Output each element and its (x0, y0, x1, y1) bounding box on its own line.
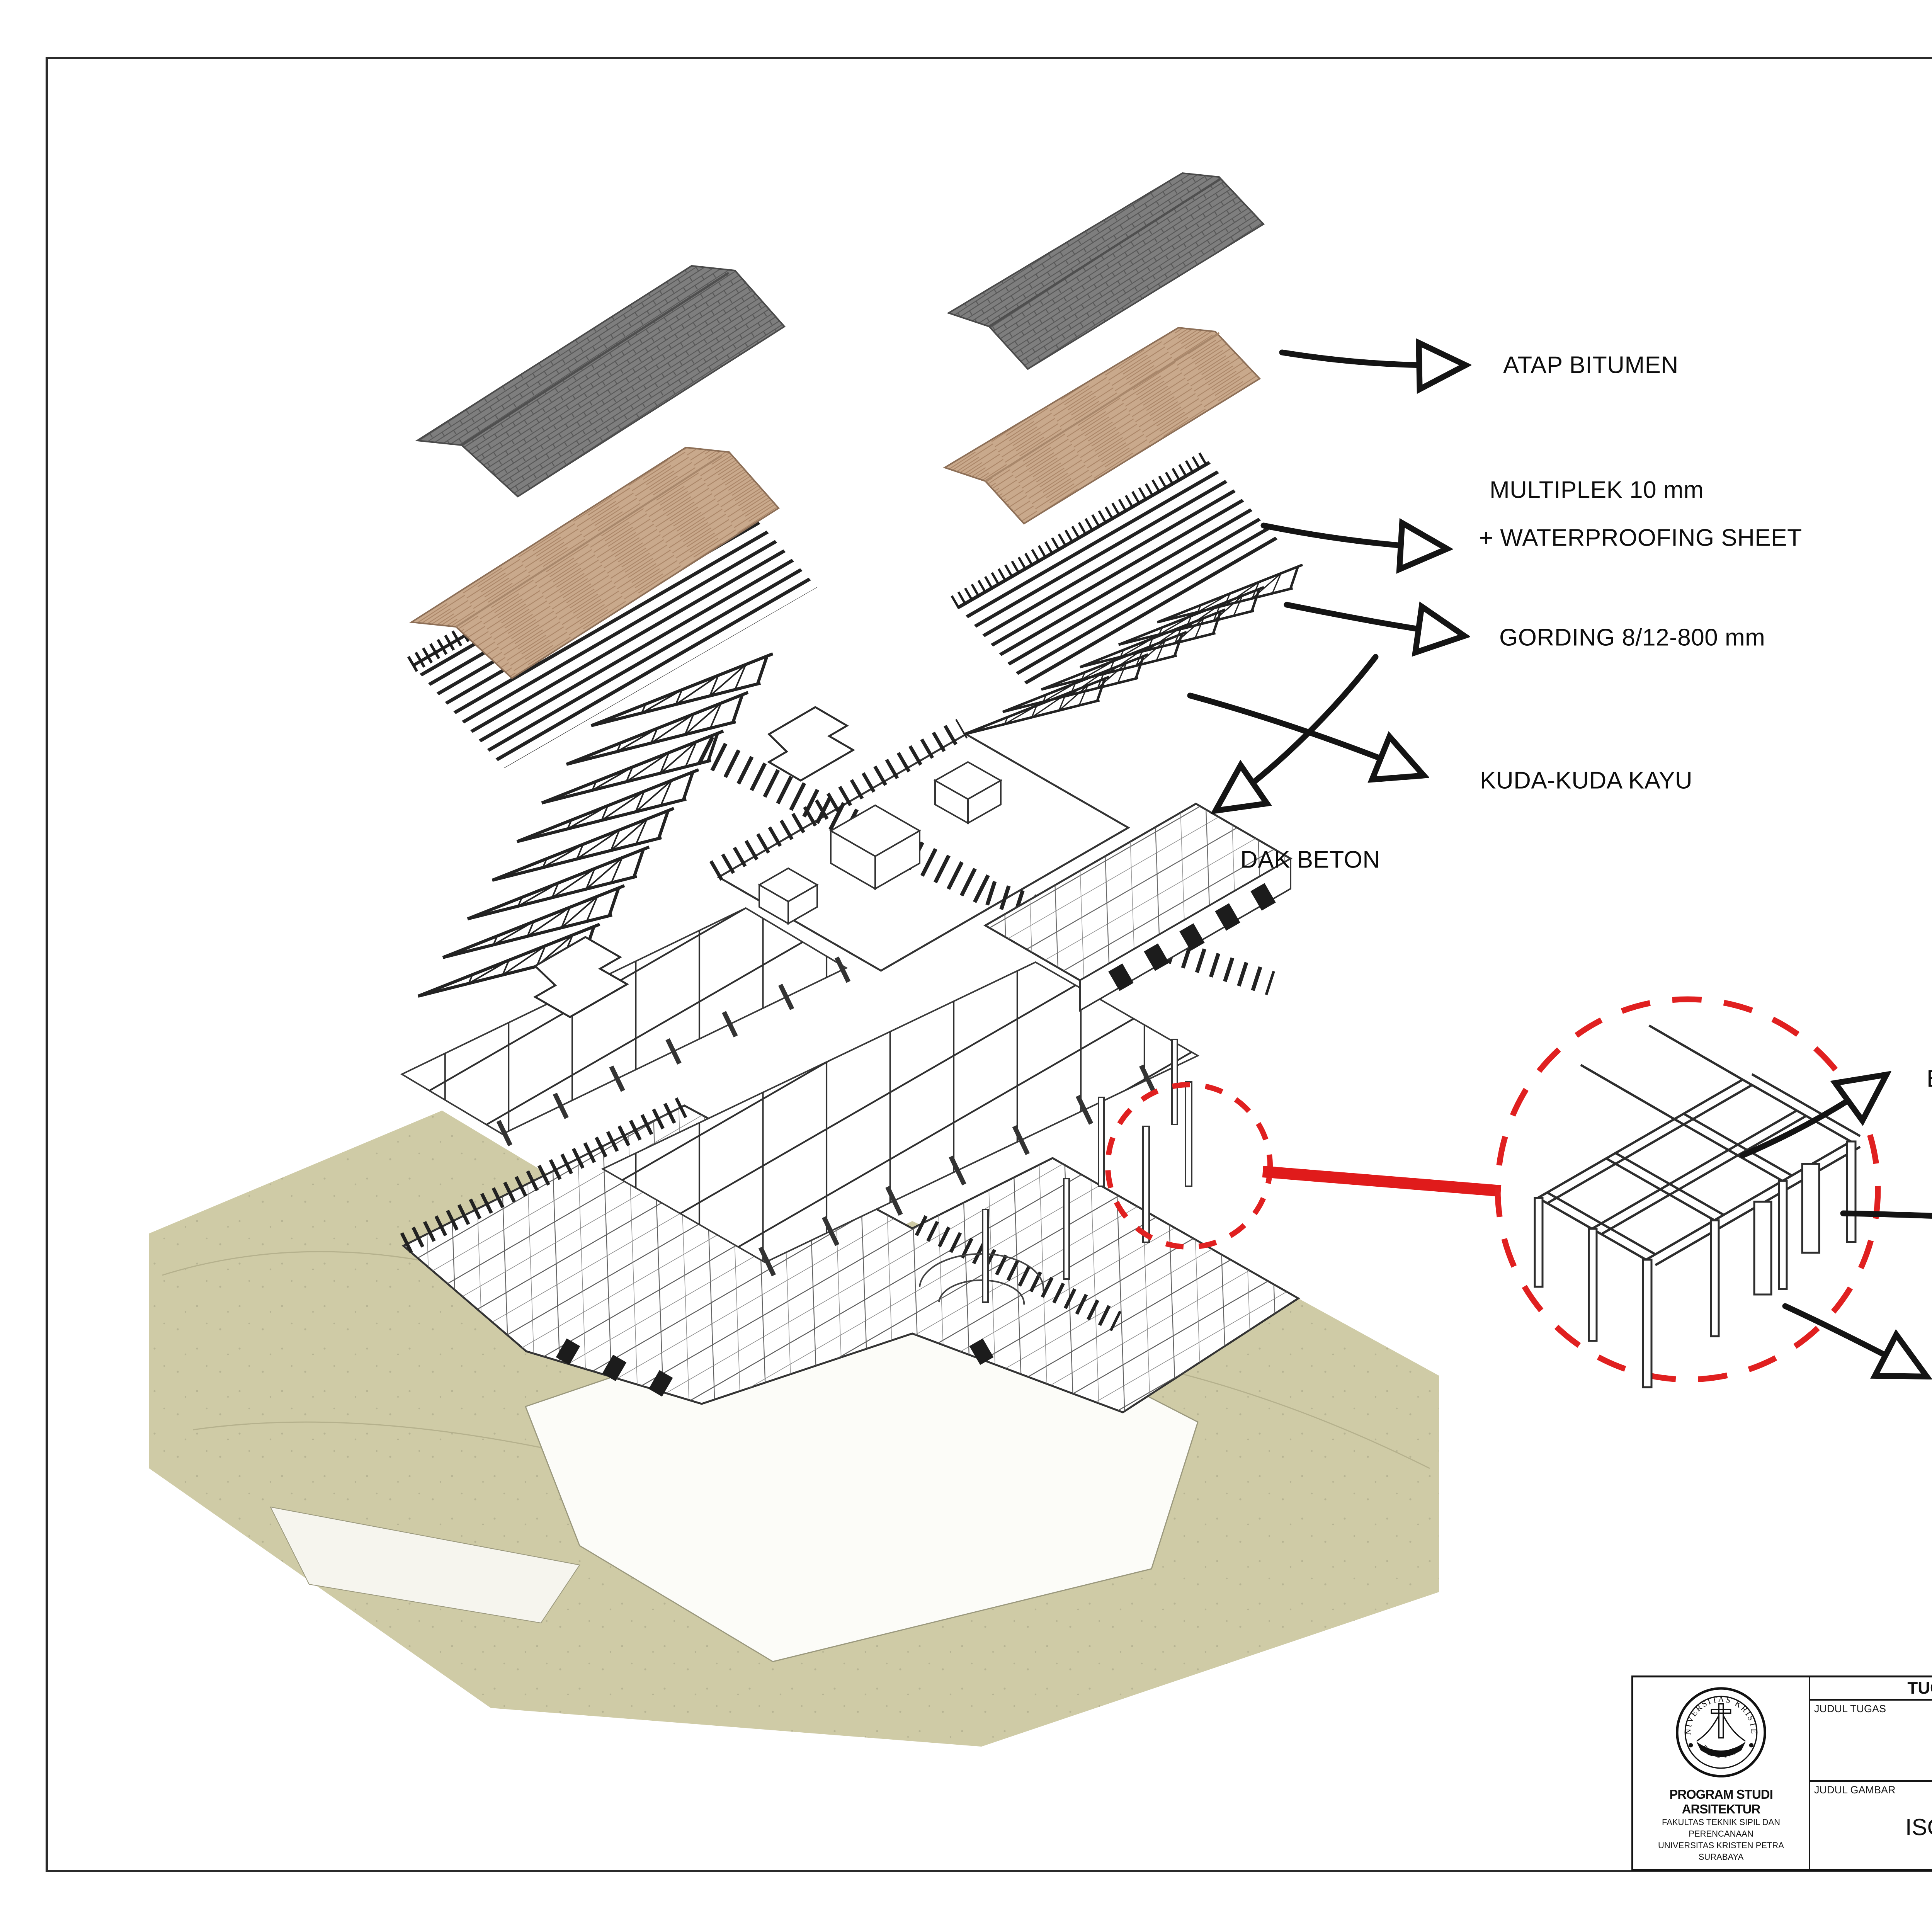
arrow-dak-beton (1217, 657, 1376, 810)
judul-gambar-label: JUDUL GAMBAR (1810, 1782, 1932, 1798)
detail-leader-line (1263, 1172, 1501, 1191)
logo-top-text: UNIVERSITAS KRISTEN (1675, 1686, 1759, 1735)
judul-tugas-line1: FASILITAS TERAPI PENDERITA (1810, 1717, 1932, 1743)
judul-tugas-line2: DEMENSIA DI BATU (1810, 1743, 1932, 1768)
plan-outline-right (769, 707, 853, 781)
judul-gambar-value: ISOMETRI STRUKTUR (1810, 1814, 1932, 1840)
institution-cell: UNIVERSITAS KRISTEN PETRA PROGRAM STUDI … (1633, 1677, 1810, 1869)
petra-university-logo: UNIVERSITAS KRISTEN PETRA (1675, 1686, 1767, 1779)
judul-tugas-label: JUDUL TUGAS (1810, 1701, 1932, 1717)
kolom-pipih-shape (1754, 1202, 1771, 1294)
institution-line3: UNIVERSITAS KRISTEN PETRA (1633, 1840, 1809, 1851)
roof-stack-left (412, 266, 817, 1017)
arrow-balok-beton (1743, 1076, 1885, 1155)
sheet-header-cell: TUGAS AKHIR - SEMESTER GENAP 2021/2022 (1810, 1677, 1932, 1701)
label-multiplek-2: + WATERPROOFING SHEET (1479, 524, 1802, 552)
judul-gambar-cell: JUDUL GAMBAR ISOMETRI STRUKTUR (1810, 1782, 1932, 1869)
judul-tugas-cell: JUDUL TUGAS FASILITAS TERAPI PENDERITA D… (1810, 1701, 1932, 1782)
institution-line1: PROGRAM STUDI ARSITEKTUR (1633, 1787, 1809, 1817)
label-dak-beton: DAK BETON (1240, 846, 1380, 874)
roof-stack-right (769, 173, 1303, 781)
institution-line4: SURABAYA (1633, 1851, 1809, 1863)
label-kuda-kuda: KUDA-KUDA KAYU (1480, 767, 1692, 794)
label-gording: GORDING 8/12-800 mm (1499, 624, 1765, 651)
kolom-pipih-shape (1802, 1164, 1819, 1253)
label-balok-beton: BALOK BETON (1927, 1065, 1932, 1093)
arrow-atap-bitumen (1282, 352, 1464, 366)
drawing-sheet: ATAP BITUMEN MULTIPLEK 10 mm + WATERPROO… (0, 0, 1932, 1917)
institution-line2: FAKULTAS TEKNIK SIPIL DAN PERENCANAAN (1633, 1817, 1809, 1840)
svg-text:UNIVERSITAS KRISTEN: UNIVERSITAS KRISTEN (1675, 1686, 1759, 1735)
isometric-structure-drawing (0, 0, 1932, 1917)
label-multiplek-1: MULTIPLEK 10 mm (1490, 476, 1704, 504)
arrow-multiplek (1264, 526, 1445, 549)
title-block: UNIVERSITAS KRISTEN PETRA PROGRAM STUDI … (1631, 1675, 1932, 1871)
label-atap-bitumen: ATAP BITUMEN (1503, 352, 1679, 379)
arrow-gording (1287, 605, 1463, 636)
